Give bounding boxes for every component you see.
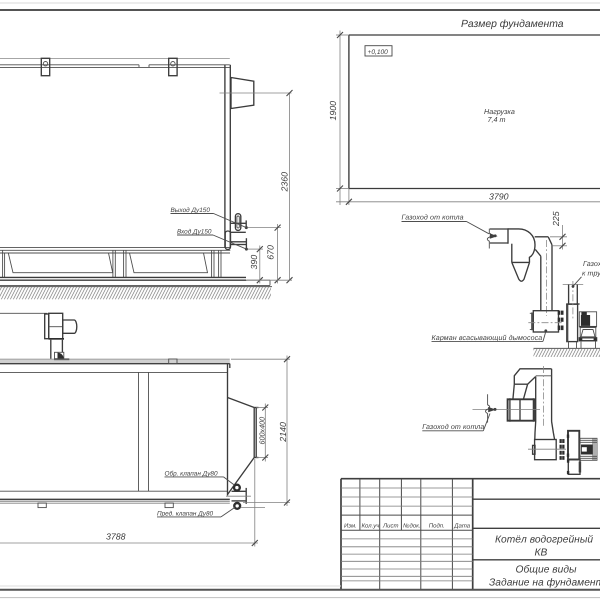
svg-text:Газоход от котла: Газоход от котла (422, 423, 484, 431)
svg-text:Обр. клапан Ду80: Обр. клапан Ду80 (165, 470, 218, 477)
svg-text:2360: 2360 (280, 172, 290, 193)
svg-text:Газоход: Газоход (583, 260, 600, 268)
svg-text:Карман всасывающий дымососа: Карман всасывающий дымососа (432, 334, 543, 342)
svg-text:к трубе: к трубе (582, 269, 600, 277)
svg-text:670: 670 (266, 245, 276, 260)
svg-text:КВ: КВ (535, 548, 548, 559)
svg-text:7,4 т: 7,4 т (488, 115, 506, 124)
svg-text:1900: 1900 (328, 101, 338, 121)
svg-text:Пред. клапан Ду80: Пред. клапан Ду80 (157, 510, 214, 517)
svg-text:Дата: Дата (453, 523, 470, 530)
svg-text:Газоход от котла: Газоход от котла (402, 214, 464, 222)
svg-text:Вход Ду150: Вход Ду150 (177, 228, 212, 235)
svg-text:Общие виды: Общие виды (516, 565, 578, 576)
svg-text:3790: 3790 (489, 191, 509, 201)
svg-text:Подп.: Подп. (429, 523, 445, 530)
svg-text:2140: 2140 (278, 422, 288, 443)
svg-text:Размер фундамента: Размер фундамента (461, 19, 564, 30)
svg-text:Выход Ду150: Выход Ду150 (171, 207, 211, 214)
svg-text:+0,100: +0,100 (368, 49, 389, 56)
svg-text:Кол.уч: Кол.уч (362, 523, 380, 530)
svg-text:225: 225 (551, 211, 561, 227)
svg-text:Задание на фундамент: Задание на фундамент (489, 578, 600, 589)
svg-text:№док.: №док. (403, 523, 421, 530)
svg-text:Изм.: Изм. (344, 523, 357, 530)
svg-text:600х400: 600х400 (258, 417, 267, 445)
svg-text:Лист: Лист (382, 523, 398, 530)
svg-text:Котёл водогрейный: Котёл водогрейный (495, 535, 593, 546)
svg-text:3788: 3788 (106, 532, 126, 542)
svg-text:390: 390 (249, 255, 259, 270)
